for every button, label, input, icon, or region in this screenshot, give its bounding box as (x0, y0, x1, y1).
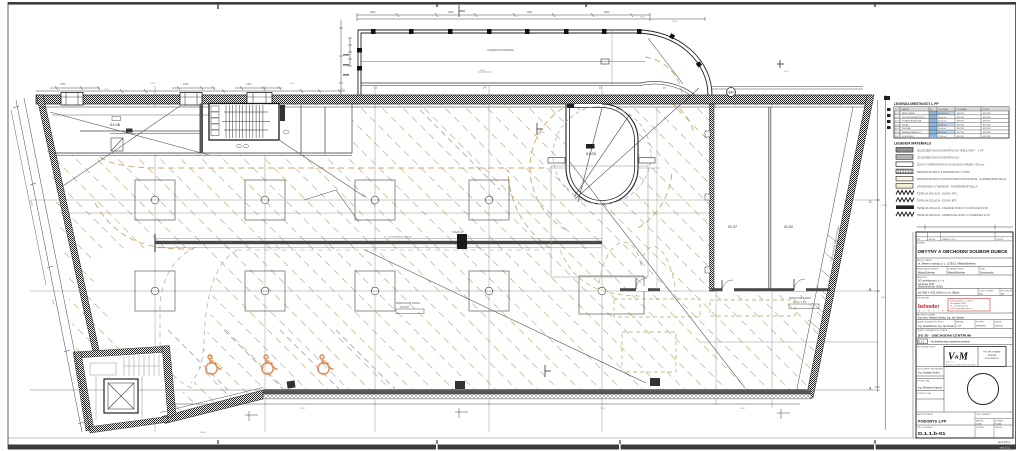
svg-text:CISLO ZAKAZKY: CISLO ZAKAZKY (976, 413, 992, 416)
svg-text:TECHNICKA MIESTNOST: TECHNICKA MIESTNOST (902, 116, 926, 119)
svg-text:EPOXID: EPOXID (983, 128, 991, 130)
svg-text:3900: 3900 (604, 11, 610, 14)
svg-text:april 2011: april 2011 (1000, 447, 1011, 450)
svg-text:LEGENDA MIESTNOSTI 1. PP: LEGENDA MIESTNOSTI 1. PP (894, 102, 939, 106)
svg-text:12,80 m2: 12,80 m2 (938, 136, 947, 138)
svg-text:PL.: PL. (930, 109, 933, 111)
svg-text:04/2011: 04/2011 (995, 325, 1004, 327)
svg-text:01.01: 01.01 (895, 113, 901, 115)
svg-text:ZELEZOBETONOVA KONSTRUKCIA: ZELEZOBETONOVA KONSTRUKCIA (917, 157, 959, 160)
svg-text:PRIECKOVE ZDIVO Z POROBETONU Y: PRIECKOVE ZDIVO Z POROBETONU YTONG (917, 171, 970, 174)
svg-text:FORMAT: FORMAT (995, 419, 1004, 422)
svg-text:38 STAT: 38 STAT (400, 306, 410, 309)
svg-text:2200: 2200 (340, 89, 346, 91)
svg-text:ZELEZOBETONOVA KONSTRUKCIA "BI: ZELEZOBETONOVA KONSTRUKCIA "BIELE VANY" … (917, 149, 984, 152)
svg-text:Balt: Balt (979, 293, 983, 296)
svg-text:PROJEKTANT CASTI: PROJEKTANT CASTI (917, 345, 936, 348)
svg-text:36,20 m2: 36,20 m2 (938, 121, 947, 123)
svg-text:STAVIEB: STAVIEB (988, 354, 997, 357)
svg-text:KONTROLOVAL: KONTROLOVAL (917, 392, 931, 395)
svg-text:01.04: 01.04 (895, 124, 901, 126)
svg-text:MIESTO STAVBY: MIESTO STAVBY (917, 259, 933, 262)
svg-text:OBYTNY A OBCHODNI SOUBOR DUBCE: OBYTNY A OBCHODNI SOUBOR DUBCE (918, 249, 1008, 254)
svg-text:Stredocesky: Stredocesky (980, 272, 995, 275)
svg-text:SUPERMARKET BILLA: SUPERMARKET BILLA (388, 236, 412, 239)
svg-text:A POZEMKOV: A POZEMKOV (985, 357, 999, 360)
svg-text:PLOCHA: PLOCHA (939, 108, 948, 111)
svg-text:e-mail: atelier@belveder.cz: e-mail: atelier@belveder.cz (950, 307, 972, 310)
svg-text:INVESTOR: INVESTOR (917, 277, 927, 279)
svg-text:ZM.: ZM. (917, 239, 921, 241)
svg-text:2614,00 m2: 2614,00 m2 (938, 113, 949, 115)
svg-text:BETON: BETON (957, 128, 964, 130)
svg-text:S 02: S 02 (540, 132, 545, 134)
svg-text:POZN.: POZN. (983, 109, 990, 111)
svg-text:6410: 6410 (740, 408, 746, 410)
svg-text:TEPELNA IZOLACIA - DOSKY EPS: TEPELNA IZOLACIA - DOSKY EPS (917, 200, 957, 203)
svg-text:PODPIS: PODPIS (996, 239, 1004, 241)
svg-text:BETON: BETON (957, 117, 964, 119)
svg-text:D.1.1.b-01: D.1.1.b-01 (918, 431, 946, 436)
svg-text:01.02: 01.02 (895, 117, 901, 119)
svg-text:9000: 9000 (881, 297, 887, 299)
svg-text:TEPELNA IZOLACIA - MINERALNE D: TEPELNA IZOLACIA - MINERALNE DOSKY Z KAM… (917, 214, 991, 217)
svg-text:BETON: BETON (957, 124, 964, 126)
svg-text:2400: 2400 (672, 21, 678, 23)
svg-text:Ing. Miroslava Vojsova: Ing. Miroslava Vojsova (918, 387, 943, 390)
svg-text:april 2011: april 2011 (998, 440, 1011, 444)
svg-text:01.02: 01.02 (784, 225, 793, 229)
svg-text:PARKOVNE STATIE: PARKOVNE STATIE (789, 297, 811, 300)
svg-text:PROJEKTOVANIE: PROJEKTOVANIE (983, 351, 1001, 354)
svg-text:STAVBA: STAVBA (917, 242, 925, 245)
svg-text:14,60 m2: 14,60 m2 (938, 128, 947, 130)
svg-text:SKLAD: SKLAD (902, 123, 909, 126)
svg-text:PARKOVACIE STATIE: PARKOVACIE STATIE (396, 302, 420, 305)
svg-text:3900: 3900 (370, 11, 376, 14)
svg-text:KATASTRALNE UZEMIE: KATASTRALNE UZEMIE (917, 268, 939, 271)
svg-text:CHODBA: CHODBA (902, 127, 911, 130)
svg-text:01.03: 01.03 (895, 121, 901, 123)
svg-text:Ing. Jana Bartova, Ing. Jan Si: Ing. Jana Bartova, Ing. Jan Simek (918, 325, 955, 328)
svg-text:01.01 / 1.PP: 01.01 / 1.PP (793, 301, 807, 304)
svg-text:Mlada Boleslav: Mlada Boleslav (918, 272, 936, 275)
svg-text:BETON: BETON (957, 121, 964, 123)
svg-text:2700: 2700 (183, 83, 189, 86)
svg-text:LEGENDA MATERIALU: LEGENDA MATERIALU (894, 142, 932, 146)
svg-text:86,10 m2: 86,10 m2 (938, 132, 947, 134)
svg-text:PODORYS 1.PP: PODORYS 1.PP (918, 420, 947, 424)
svg-text:VJAZD 01: VJAZD 01 (452, 231, 464, 234)
svg-text:Ing. Vratislav Sedivy: Ing. Vratislav Sedivy (918, 372, 940, 375)
svg-text:Ing. arch. Vratislav Danda, I: Ing. arch. Vratislav Danda, Ing. Jan Opl… (918, 317, 965, 320)
svg-text:DATUM: DATUM (929, 238, 936, 241)
svg-text:STUPEN: STUPEN (976, 427, 984, 429)
svg-text:01.03: 01.03 (586, 151, 597, 156)
svg-text:7520: 7520 (300, 408, 306, 410)
svg-text:EPOXID: EPOXID (983, 117, 991, 119)
svg-text:C: C (869, 200, 872, 204)
svg-text:3900: 3900 (527, 11, 533, 14)
svg-text:Dac. s r.o.: Dac. s r.o. (946, 362, 955, 364)
svg-text:±0.000 = 231.500 m n.m. (Bpv): ±0.000 = 231.500 m n.m. (Bpv) (918, 291, 959, 295)
svg-text:ZAZEMIE MARKETU: ZAZEMIE MARKETU (902, 131, 922, 134)
svg-text:EPOXID: EPOXID (983, 132, 991, 134)
svg-text:TEPELNA IZOLACIA - DOSKY XPS: TEPELNA IZOLACIA - DOSKY XPS (917, 193, 957, 196)
svg-text:22,40 m2: 22,40 m2 (938, 124, 947, 126)
svg-text:DATUM: DATUM (995, 426, 1002, 429)
svg-text:SJAZDOVA RAMPA: SJAZDOVA RAMPA (487, 48, 514, 52)
svg-text:D.1.1: D.1.1 (918, 340, 925, 344)
svg-text:48,50 m2: 48,50 m2 (938, 117, 947, 119)
svg-text:ZMENA / POPIS: ZMENA / POPIS (942, 238, 957, 241)
svg-text:VYTAHOVA SACHTA: VYTAHOVA SACHTA (902, 120, 922, 123)
svg-text:PODLAHA: PODLAHA (957, 108, 967, 111)
svg-text:7520: 7520 (600, 408, 606, 410)
svg-text:HLAVNY INZINIER PROJEKTU: HLAVNY INZINIER PROJEKTU (917, 320, 944, 323)
svg-text:15100: 15100 (881, 205, 888, 207)
svg-text:PRIECKOVE ZDIVO A MONTOVANE KO: PRIECKOVE ZDIVO A MONTOVANE KONSTRUKCIE … (917, 178, 1006, 181)
svg-text:36400: 36400 (200, 432, 207, 434)
svg-text:PROJEKTANT: PROJEKTANT (917, 297, 930, 300)
svg-text:EPOXID: EPOXID (983, 136, 991, 138)
svg-text:belveder: belveder (918, 304, 939, 310)
svg-text:01.07: 01.07 (895, 136, 901, 138)
svg-text:BETON: BETON (957, 132, 964, 134)
svg-text:01.06: 01.06 (895, 132, 901, 134)
svg-text:ul. Maseru vystrup, p.c. 1175/: ul. Maseru vystrup, p.c. 1175/13, Mlada … (918, 262, 976, 266)
svg-text:01.06: 01.06 (110, 122, 121, 127)
svg-text:01.07: 01.07 (728, 225, 737, 229)
svg-text:STUPEN: STUPEN (976, 321, 984, 323)
svg-text:1250: 1250 (104, 89, 110, 91)
svg-text:BETON: BETON (957, 113, 964, 115)
svg-text:POLOHOPIS: POLOHOPIS (1001, 290, 1013, 292)
svg-text:CISLO VYKRESU: CISLO VYKRESU (917, 427, 933, 429)
svg-text:3900: 3900 (640, 17, 646, 19)
svg-text:MIERKA: MIERKA (956, 320, 964, 323)
svg-text:- Architektonicko-stavebne rie: - Architektonicko-stavebne riesenie (930, 340, 971, 344)
svg-text:Mlada Boleslav: Mlada Boleslav (948, 272, 966, 275)
svg-text:SCHODISKO: SCHODISKO (902, 136, 914, 138)
svg-text:2700: 2700 (246, 83, 252, 86)
svg-text:BETON: BETON (957, 136, 964, 138)
svg-text:4120: 4120 (290, 83, 296, 85)
svg-text:EPOXID: EPOXID (983, 113, 991, 115)
svg-text:VYPRACOVAL: VYPRACOVAL (917, 379, 930, 382)
svg-text:TEPELNA IZOLACIA - FASADNE DOS: TEPELNA IZOLACIA - FASADNE DOSKY Z CADIC… (917, 207, 989, 210)
svg-text:2700: 2700 (60, 83, 66, 86)
svg-text:EPOXID: EPOXID (983, 121, 991, 123)
svg-text:STAVEBNY URAD: STAVEBNY URAD (948, 268, 964, 271)
svg-text:PARKOVANIE: PARKOVANIE (902, 112, 915, 115)
svg-text:ZARIADENIE A VYBAVENIE - SUPER: ZARIADENIE A VYBAVENIE - SUPERMARKET BIL… (917, 185, 978, 188)
svg-text:1:100: 1:100 (956, 325, 962, 327)
svg-text:NAZOV: NAZOV (902, 108, 910, 111)
svg-text:KRAJ: KRAJ (980, 268, 985, 271)
svg-text:01.05: 01.05 (895, 128, 901, 130)
svg-text:MIERKA: MIERKA (976, 419, 984, 422)
svg-text:VYSK. SYSTEM: VYSK. SYSTEM (979, 290, 993, 292)
svg-text:OBJEKT / PREVADZKOVY SUBOR: OBJEKT / PREVADZKOVY SUBOR (917, 329, 948, 332)
svg-text:NAZOV VYKRESU: NAZOV VYKRESU (917, 413, 934, 416)
svg-text:Bakalova 31, 400 07 Usti nad: Bakalova 31, 400 07 Usti nad Labem (946, 363, 976, 366)
svg-text:1500: 1500 (480, 70, 486, 72)
svg-text:DSP/DPS: DSP/DPS (976, 325, 986, 327)
svg-text:S 01: S 01 (784, 71, 789, 73)
svg-text:ZODPOVEDNY PROJEKTANT: ZODPOVEDNY PROJEKTANT (917, 367, 944, 370)
svg-text:A T E L I E R: A T E L I E R (919, 310, 951, 313)
svg-text:17: 17 (729, 91, 733, 95)
svg-text:6000: 6000 (150, 83, 156, 85)
svg-text:SO 20 - OBCHODNI CENTRUM: SO 20 - OBCHODNI CENTRUM (918, 333, 971, 337)
svg-text:3900: 3900 (448, 11, 454, 14)
svg-text:ZDIVO Z VAPENOPISKOVYCH BLOKOV: ZDIVO Z VAPENOPISKOVYCH BLOKOV HRUBKY 30… (917, 164, 984, 167)
svg-text:DATUM: DATUM (995, 320, 1002, 323)
svg-text:EPOXID: EPOXID (983, 124, 991, 126)
